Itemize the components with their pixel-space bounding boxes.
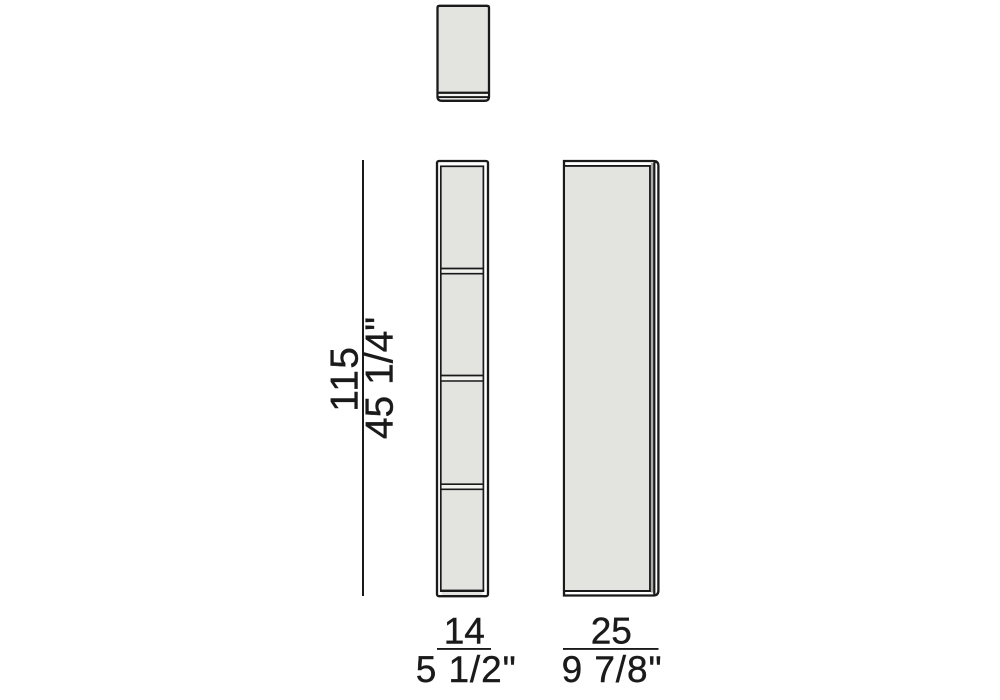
svg-text:45 1/4": 45 1/4": [359, 317, 402, 439]
svg-text:5 1/2": 5 1/2": [416, 649, 517, 690]
svg-text:25: 25: [591, 610, 632, 651]
svg-text:14: 14: [444, 610, 485, 651]
svg-text:9 7/8": 9 7/8": [562, 649, 663, 690]
